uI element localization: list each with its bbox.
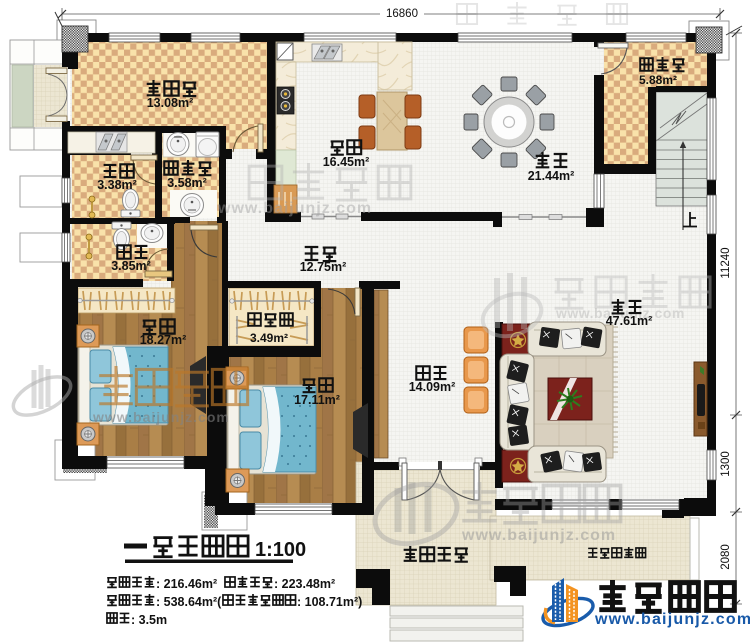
svg-text:47.61m²: 47.61m² (606, 314, 653, 328)
svg-text:: 216.46m²: : 216.46m² (156, 577, 217, 591)
svg-text:5.88m²: 5.88m² (639, 73, 677, 87)
svg-text:3.49m²: 3.49m² (250, 331, 288, 345)
svg-text:12.75m²: 12.75m² (300, 260, 347, 274)
svg-text:21.44m²: 21.44m² (528, 169, 575, 183)
svg-text:14.09m²: 14.09m² (409, 380, 456, 394)
svg-text:: 538.64m²(: : 538.64m²( (156, 595, 222, 609)
svg-text:13.08m²: 13.08m² (147, 96, 194, 110)
svg-text:11240: 11240 (720, 247, 732, 278)
svg-text:www.baijunjz.com: www.baijunjz.com (92, 409, 230, 425)
svg-text:3.85m²: 3.85m² (111, 259, 151, 273)
svg-text:www.baijunjz.com: www.baijunjz.com (461, 527, 616, 544)
svg-text:www.baijunjz.com: www.baijunjz.com (594, 611, 750, 628)
svg-text:1300: 1300 (720, 451, 732, 477)
svg-text:18.27m²: 18.27m² (140, 333, 187, 347)
svg-text:16860: 16860 (386, 8, 418, 20)
svg-text:www.baijunjz.com: www.baijunjz.com (217, 200, 372, 217)
svg-text:17.11m²: 17.11m² (294, 393, 340, 407)
svg-text:: 223.48m²: : 223.48m² (274, 577, 335, 591)
svg-text:: 3.5m: : 3.5m (131, 613, 167, 627)
svg-text:3.38m²: 3.38m² (97, 178, 137, 192)
svg-text:1:100: 1:100 (255, 539, 306, 561)
svg-text:3.58m²: 3.58m² (167, 176, 207, 190)
svg-text:16.45m²: 16.45m² (323, 155, 370, 169)
svg-text:2080: 2080 (720, 544, 732, 570)
svg-text:: 108.71m²): : 108.71m²) (297, 595, 362, 609)
